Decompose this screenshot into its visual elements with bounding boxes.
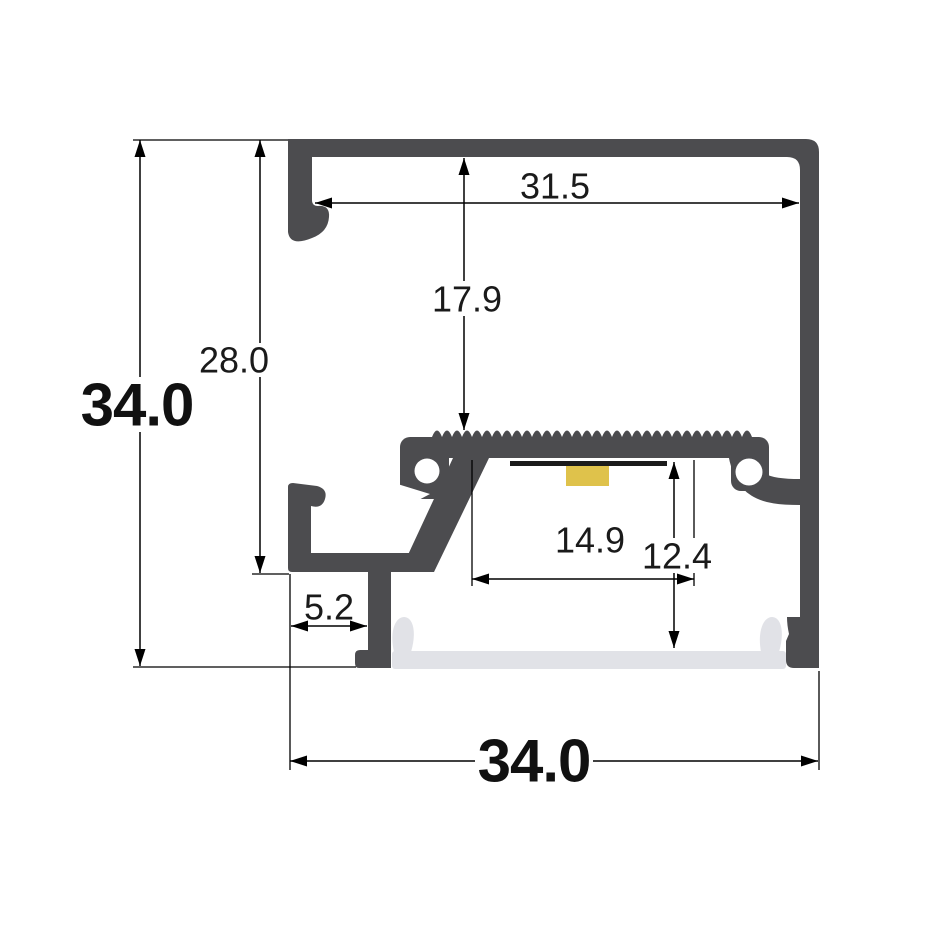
- dim-inner-height-label: 28.0: [199, 340, 269, 381]
- screw-hole-left: [415, 459, 440, 484]
- dim-cavity-depth-label: 12.4: [642, 536, 712, 577]
- led-pcb: [510, 461, 667, 466]
- dim-cavity-depth: 12.4: [639, 462, 715, 648]
- profile-bottom-right-foot: [786, 617, 819, 668]
- dim-foot-offset-label: 5.2: [304, 587, 354, 628]
- led-strip: [510, 461, 667, 486]
- dim-top-inner-width: 31.5: [315, 166, 799, 207]
- diffuser-left-knob: [392, 617, 414, 652]
- dim-top-inner-width-label: 31.5: [520, 166, 590, 207]
- dim-overall-width: 34.0: [290, 728, 818, 795]
- dim-overall-height: 34.0: [78, 140, 197, 666]
- dim-foot-offset: 5.2: [291, 587, 367, 628]
- technical-drawing-canvas: 34.0 28.0 31.5 17.9 14.9 12.4 5.2: [0, 0, 930, 930]
- screw-hole-right: [736, 459, 763, 486]
- dim-depth-to-led-platform: 17.9: [429, 158, 505, 430]
- dim-depth-to-led-platform-label: 17.9: [432, 279, 502, 320]
- profile-frame: [288, 139, 819, 668]
- profile-bottom-stem-foot: [355, 560, 391, 668]
- profile-cross-section-drawing: 34.0 28.0 31.5 17.9 14.9 12.4 5.2: [0, 0, 930, 930]
- dim-inner-height: 28.0: [196, 140, 272, 573]
- diffuser-cover: [392, 617, 786, 669]
- diffuser-sheet: [392, 651, 786, 669]
- profile-led-platform: [401, 431, 767, 459]
- led-chip: [566, 466, 609, 486]
- dim-overall-width-label: 34.0: [478, 728, 591, 795]
- dim-overall-height-label: 34.0: [81, 372, 194, 439]
- diffuser-right-knob: [760, 617, 782, 652]
- dim-led-platform-width-label: 14.9: [555, 520, 625, 561]
- aluminium-profile-body: [288, 139, 819, 668]
